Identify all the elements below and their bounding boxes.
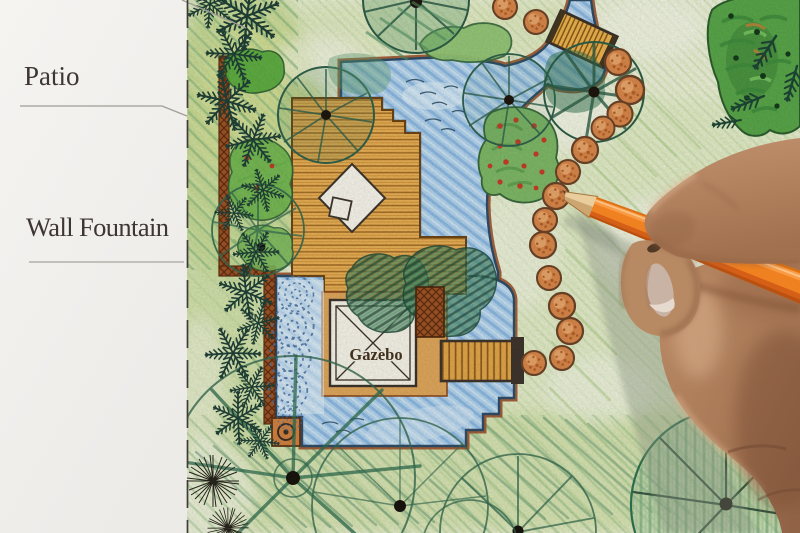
svg-text:Wall Fountain: Wall Fountain [26, 212, 169, 242]
svg-text:Patio: Patio [24, 61, 80, 91]
